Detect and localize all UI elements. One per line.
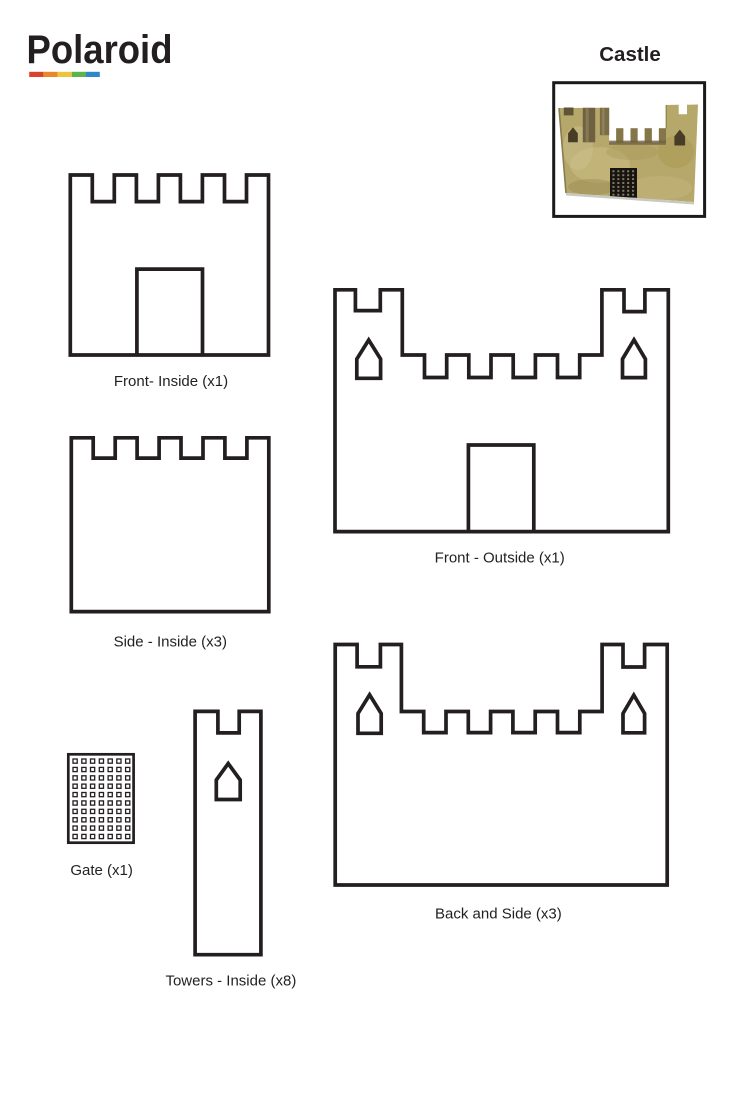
svg-text:Towers - Inside (x8): Towers - Inside (x8) — [165, 973, 296, 990]
svg-text:Front- Inside (x1): Front- Inside (x1) — [114, 373, 228, 390]
svg-text:Gate (x1): Gate (x1) — [70, 862, 133, 879]
svg-text:Polaroid: Polaroid — [27, 28, 173, 72]
svg-text:Side - Inside (x3): Side - Inside (x3) — [114, 634, 227, 651]
svg-text:Front - Outside (x1): Front - Outside (x1) — [435, 549, 565, 566]
svg-text:Back and Side (x3): Back and Side (x3) — [435, 906, 562, 923]
svg-text:Castle: Castle — [599, 43, 661, 66]
